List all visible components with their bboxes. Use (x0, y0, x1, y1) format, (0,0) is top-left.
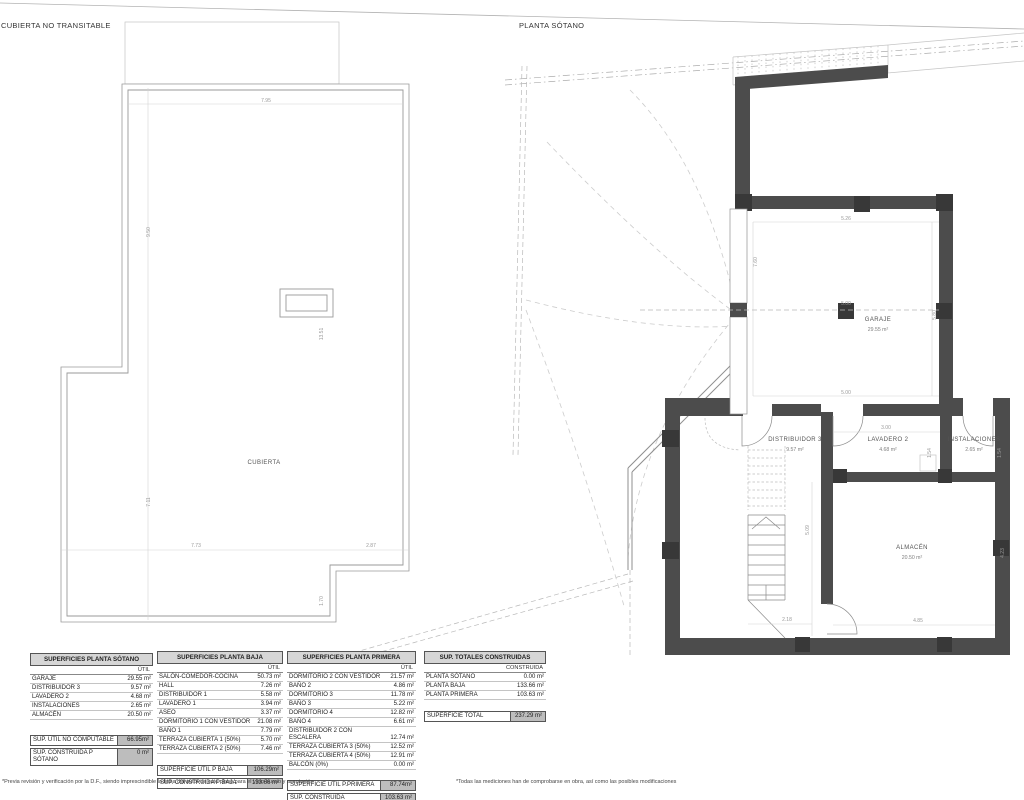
room-label-almacen: ALMACÉN (896, 544, 928, 551)
dim-stair-width: 2.18 (782, 617, 792, 623)
dim-cubierta-top: 7.95 (261, 98, 271, 104)
sotano-walls (662, 65, 1010, 655)
dim-garage-right: 5.80 (932, 310, 938, 320)
dim-garage-bottom: 5.00 (841, 390, 851, 396)
dim-cubierta-notch: 1.70 (319, 596, 325, 606)
room-label-garaje: GARAJE (865, 317, 891, 323)
dim-cubierta-left-lower: 7.11 (146, 497, 152, 507)
table-row: TERRAZA CUBIERTA 4 (50%)12.91 m² (287, 752, 416, 761)
table-row: BAÑO 46.61 m² (287, 718, 416, 727)
table-row: BAÑO 24.86 m² (287, 682, 416, 691)
room-label-instalaciones: INSTALACIONES (948, 437, 1001, 443)
dim-lavadero-height: 1.54 (927, 448, 933, 458)
dim-garage-width: 5.26 (841, 216, 851, 222)
table-row: GARAJE29.55 m² (30, 675, 153, 684)
table-row: PLANTA PRIMERA103.63 m² (424, 691, 546, 700)
room-area-distribuidor3: 9.57 m² (786, 447, 804, 453)
table-row: DISTRIBUIDOR 39.57 m² (30, 684, 153, 693)
table-row: DISTRIBUIDOR 2 CON ESCALERA12.74 m² (287, 727, 416, 743)
dim-almacen-width: 4.85 (913, 618, 923, 624)
table-sup-totales-construidas: SUP. TOTALES CONSTRUIDAS CONSTRUIDA PLAN… (424, 651, 546, 722)
room-area-garaje: 29.55 m² (868, 327, 889, 333)
room-label-distribuidor3: DISTRIBUIDOR 3 (768, 437, 822, 443)
table-row: LAVADERO 24.68 m² (30, 693, 153, 702)
table-total-row: SUPERFICIE ÚTIL P BAJA106.29m² (157, 765, 283, 776)
table-title: SUPERFICIES PLANTA BAJA (157, 651, 283, 664)
drawing-sheet: CUBIERTA NO TRANSITABLE CUBIERTA 7.95 9.… (0, 0, 1024, 800)
table-title: SUPERFICIES PLANTA PRIMERA (287, 651, 416, 664)
table-row: SALÓN-COMEDOR-COCINA50.73 m² (157, 673, 283, 682)
room-area-almacen: 20.50 m² (902, 555, 923, 561)
table-col-header: ÚTIL (30, 666, 153, 675)
dim-cubierta-bottom-right: 2.87 (366, 543, 376, 549)
cubierta-plan-title: CUBIERTA NO TRANSITABLE (1, 21, 111, 30)
footnote-left: *Previa revisión y verificación por la D… (2, 779, 314, 785)
table-row: DORMITORIO 412.82 m² (287, 709, 416, 718)
dim-skylight: 13.51 (319, 328, 325, 341)
table-total-row: SUPERFICIE TOTAL237.29 m² (424, 711, 546, 722)
dim-lavadero-width: 3.00 (881, 425, 891, 431)
table-total-row: SUP. CONSTRUIDA P.PRIMERA103.63 m² (287, 793, 416, 800)
table-row: TERRAZA CUBIERTA 3 (50%)12.52 m² (287, 743, 416, 752)
table-col-header: CONSTRUIDA (424, 664, 546, 673)
table-total-row: SUP. ÚTIL NO COMPUTABLE66.95m² (30, 735, 153, 746)
dim-instalaciones-height: 1.54 (997, 448, 1003, 458)
room-area-lavadero2: 4.68 m² (879, 447, 897, 453)
room-label-lavadero2: LAVADERO 2 (868, 437, 909, 443)
cubierta-plan: CUBIERTA NO TRANSITABLE CUBIERTA 7.95 9.… (1, 21, 409, 622)
table-col-header: ÚTIL (157, 664, 283, 673)
retaining-wall (628, 363, 737, 570)
table-row: BALCÓN (0%)0.00 m² (287, 761, 416, 770)
table-row: DISTRIBUIDOR 15.58 m² (157, 691, 283, 700)
table-total-row: SUP. CONSTRUIDA P SÓTANO0 m² (30, 748, 153, 766)
table-row: ASEO3.37 m² (157, 709, 283, 718)
table-row: HALL7.26 m² (157, 682, 283, 691)
table-row: INSTALACIONES2.65 m² (30, 702, 153, 711)
table-row: DORMITORIO 311.78 m² (287, 691, 416, 700)
driveway-arcs (526, 90, 734, 606)
table-row: DORMITORIO 1 CON VESTIDOR21.08 m² (157, 718, 283, 727)
dim-almacen-height: 4.23 (1000, 548, 1006, 558)
table-title: SUP. TOTALES CONSTRUIDAS (424, 651, 546, 664)
dim-cubierta-bottom-left: 7.73 (191, 543, 201, 549)
dim-garage-mid: 5.00 (841, 301, 851, 307)
table-row: ALMACÉN20.50 m² (30, 711, 153, 720)
table-title: SUPERFICIES PLANTA SÓTANO (30, 653, 153, 666)
room-area-instalaciones: 2.65 m² (965, 447, 983, 453)
garage-door (730, 209, 747, 414)
sotano-plan: PLANTA SÓTANO GARAJE 29.55 m² DISTRIBUID… (519, 21, 1024, 655)
table-row: TERRAZA CUBIERTA 1 (50%)5.70 m² (157, 736, 283, 745)
table-row: BAÑO 17.79 m² (157, 727, 283, 736)
table-col-header: ÚTIL (287, 664, 416, 673)
table-row: TERRAZA CUBIERTA 2 (50%)7.46 m² (157, 745, 283, 754)
table-row: PLANTA BAJA133.66 m² (424, 682, 546, 691)
dim-cubierta-left-upper: 9.50 (146, 227, 152, 237)
room-label-cubierta: CUBIERTA (248, 460, 281, 466)
table-row: LAVADERO 13.94 m² (157, 700, 283, 709)
table-superficies-planta-baja: SUPERFICIES PLANTA BAJA ÚTIL SALÓN-COMED… (157, 651, 283, 789)
table-row: BAÑO 35.22 m² (287, 700, 416, 709)
sotano-plan-title: PLANTA SÓTANO (519, 21, 584, 30)
dim-stair-height: 5.09 (805, 525, 811, 535)
staircase (748, 446, 785, 638)
dim-garage-left: 7.60 (753, 257, 759, 267)
table-row: DORMITORIO 2 CON VESTIDOR21.57 m² (287, 673, 416, 682)
footnote-right: *Todas las mediciones han de comprobarse… (456, 779, 676, 785)
table-row: PLANTA SÓTANO0.00 m² (424, 673, 546, 682)
table-superficies-planta-primera: SUPERFICIES PLANTA PRIMERA ÚTIL DORMITOR… (287, 651, 416, 800)
table-superficies-planta-sotano: SUPERFICIES PLANTA SÓTANO ÚTIL GARAJE29.… (30, 653, 153, 766)
floor-plan-drawing: CUBIERTA NO TRANSITABLE CUBIERTA 7.95 9.… (0, 0, 1024, 660)
